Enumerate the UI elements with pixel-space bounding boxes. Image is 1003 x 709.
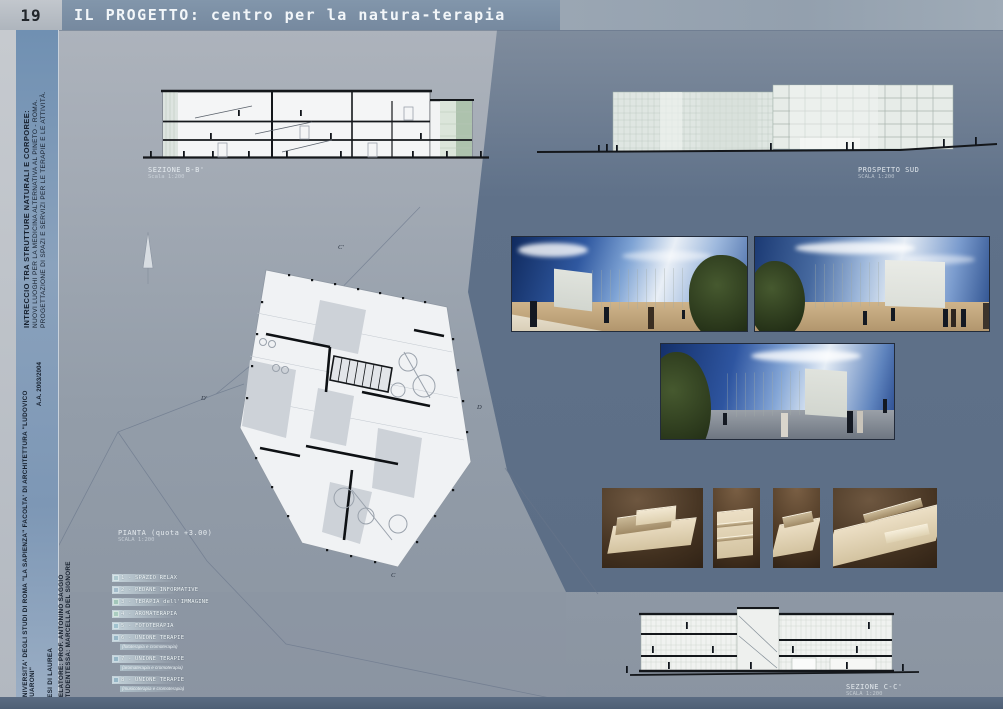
legend-item: 4 - AROMATERAPIA bbox=[112, 610, 176, 618]
legend-item-subtitle: (musicoterapia e cromoterapia) bbox=[120, 686, 176, 692]
legend-color-chip bbox=[113, 599, 119, 605]
legend-color-chip bbox=[113, 623, 119, 629]
legend-item: 8 - UNIONE TERAPIE bbox=[112, 676, 176, 684]
bottom-band bbox=[0, 697, 1003, 709]
legend-color-chip bbox=[113, 677, 119, 683]
legend-item-label: 8 - UNIONE TERAPIE bbox=[121, 677, 184, 683]
legend-item-label: 6 - UNIONE TERAPIE bbox=[121, 635, 184, 641]
legend-item-label: 5 - FOTOTERAPIA bbox=[121, 623, 174, 629]
presentation-board: 19 IL PROGETTO: centro per la natura-ter… bbox=[0, 0, 1003, 709]
legend-item-label: 4 - AROMATERAPIA bbox=[121, 611, 177, 617]
legend-color-chip bbox=[113, 656, 119, 662]
legend-color-chip bbox=[113, 575, 119, 581]
legend-color-chip bbox=[113, 587, 119, 593]
legend-item-subtitle: (aromaterapia e cromoterapia) bbox=[120, 665, 176, 671]
legend-color-chip bbox=[113, 635, 119, 641]
section-cc-label: SEZIONE C-C' bbox=[846, 683, 903, 691]
legend-item: 3 - TERAPIA dell'IMMAGINE bbox=[112, 598, 176, 606]
legend-item: 1 - SPAZIO RELAX bbox=[112, 574, 176, 582]
legend: 1 - SPAZIO RELAX2 - PEDANE INFORMATIVE3 … bbox=[112, 574, 176, 697]
legend-item-label: 7 - UNIONE TERAPIE bbox=[121, 656, 184, 662]
legend-color-chip bbox=[113, 611, 119, 617]
legend-item: 2 - PEDANE INFORMATIVE bbox=[112, 586, 176, 594]
legend-item-subtitle: (fototerapia e cromoterapia) bbox=[120, 644, 176, 650]
section-cc-caption: SEZIONE C-C' SCALA 1:200 bbox=[846, 683, 903, 697]
legend-item-label: 1 - SPAZIO RELAX bbox=[121, 575, 177, 581]
legend-item: 7 - UNIONE TERAPIE bbox=[112, 655, 176, 663]
legend-item: 5 - FOTOTERAPIA bbox=[112, 622, 176, 630]
legend-item: 6 - UNIONE TERAPIE bbox=[112, 634, 176, 642]
legend-item-label: 3 - TERAPIA dell'IMMAGINE bbox=[121, 599, 209, 605]
legend-item-label: 2 - PEDANE INFORMATIVE bbox=[121, 587, 198, 593]
